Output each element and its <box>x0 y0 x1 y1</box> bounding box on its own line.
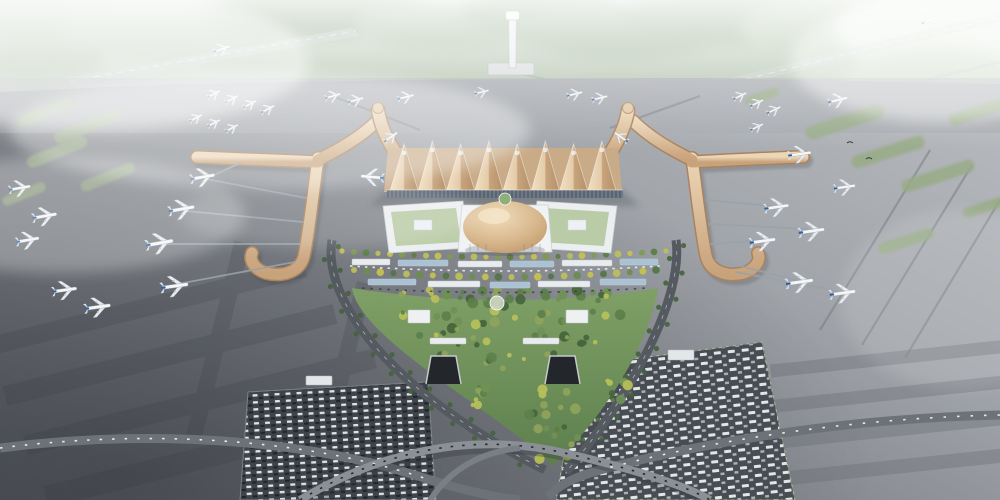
park-tree <box>458 295 463 300</box>
park-tree <box>551 432 557 438</box>
curbside-tree <box>351 267 357 273</box>
curbside-canopy <box>538 281 590 287</box>
park-tree <box>565 335 569 339</box>
park-tree <box>593 340 597 344</box>
roadside-tree <box>408 389 413 394</box>
curbside-tree <box>443 273 450 280</box>
park-tree <box>482 297 487 302</box>
park-tree <box>471 319 481 329</box>
park-tree <box>615 309 626 320</box>
curbside-tree <box>459 254 465 260</box>
curbside-tree <box>615 251 622 258</box>
airport-aerial-rendering <box>0 0 1000 500</box>
park-tree <box>609 390 615 396</box>
park-tree <box>500 365 506 371</box>
curbside-tree <box>430 272 436 278</box>
park-tree <box>398 292 404 298</box>
roadside-tree <box>673 297 678 302</box>
curbside-canopy <box>490 282 530 288</box>
curbside-tree <box>339 248 344 253</box>
tunnel-portal-right <box>545 356 580 384</box>
roadside-tree <box>665 322 670 327</box>
curbside-tree <box>561 273 568 280</box>
curbside-canopy <box>562 260 612 266</box>
roadside-tree <box>642 369 647 374</box>
park-tree <box>574 434 581 441</box>
park-tree <box>577 341 582 346</box>
park-tree <box>583 335 589 341</box>
curbside-tree <box>579 252 586 259</box>
park-tree <box>433 313 440 320</box>
curbside-canopy <box>352 259 390 265</box>
curbside-tree <box>455 273 463 281</box>
park-tree <box>442 289 452 299</box>
roadside-tree <box>427 386 432 391</box>
park-tree <box>515 294 525 304</box>
curbside-tree <box>587 272 593 278</box>
roadside-tree <box>472 436 477 441</box>
park-tree <box>467 297 478 308</box>
park-tree <box>616 395 626 405</box>
curbside-tree <box>651 248 658 255</box>
curbside-tree <box>627 251 632 256</box>
curbside-tree <box>567 253 573 259</box>
roadside-tree <box>654 346 659 351</box>
curbside-tree <box>600 271 607 278</box>
roadside-tree <box>429 406 434 411</box>
curbside-tree <box>652 266 660 274</box>
park-tree <box>473 401 482 410</box>
curbside-tree <box>543 253 550 260</box>
curbside-tree <box>390 270 396 276</box>
roadside-tree <box>614 414 619 419</box>
park-tree <box>451 307 458 314</box>
curbside-tree <box>591 253 596 258</box>
curbside-tree <box>469 274 475 280</box>
curbside-tree <box>555 254 560 259</box>
park-tree <box>540 401 548 409</box>
curbside-tree <box>447 254 452 259</box>
roadside-tree <box>389 352 394 357</box>
roadside-tree <box>328 284 333 289</box>
park-tree <box>595 298 600 303</box>
park-tree <box>490 317 500 327</box>
park-tree <box>442 311 452 321</box>
roadside-tree <box>389 371 394 376</box>
forecourt-garden <box>499 193 511 205</box>
park-tree <box>611 398 615 402</box>
roadside-tree <box>322 257 327 262</box>
roadside-tree <box>663 280 668 285</box>
rendering-canvas <box>0 0 1000 500</box>
park-tree <box>537 310 545 318</box>
curbside-tree <box>509 274 515 280</box>
park-tree <box>623 380 633 390</box>
roof-skylight <box>572 151 576 155</box>
roadside-tree <box>636 351 641 356</box>
park-tree <box>522 357 526 361</box>
roadside-tree <box>517 462 522 467</box>
park-tree <box>480 382 490 392</box>
tunnel-portal-left <box>426 356 461 384</box>
curbside-tree <box>435 253 442 260</box>
park-tree <box>543 425 549 431</box>
roadside-tree <box>338 268 343 273</box>
park-tree <box>416 332 423 339</box>
park-tree <box>537 327 545 335</box>
curbside-tree <box>376 268 384 276</box>
curbside-canopy <box>600 279 646 285</box>
park-tree <box>542 410 551 419</box>
park-tree <box>483 338 491 346</box>
roadside-tree <box>408 370 413 375</box>
roadside-tree <box>490 431 495 436</box>
roadside-tree <box>370 352 375 357</box>
park-tree <box>603 293 609 299</box>
roadside-tree <box>346 291 351 296</box>
curbside-tree <box>548 273 554 279</box>
park-tree <box>454 327 459 332</box>
curbside-tree <box>639 268 646 275</box>
roadside-tree <box>339 309 344 314</box>
curbside-tree <box>423 253 429 259</box>
park-tree <box>533 424 542 433</box>
curbside-tree <box>403 271 410 278</box>
roadside-tree <box>647 328 652 333</box>
park-tree <box>562 424 568 430</box>
park-tree <box>431 295 436 300</box>
curbside-tree <box>375 251 380 256</box>
park-tree <box>474 342 479 347</box>
roadside-tree <box>681 243 686 248</box>
park-tree <box>570 403 581 414</box>
curbside-tree <box>627 269 633 275</box>
roadside-tree <box>629 392 634 397</box>
roadside-tree <box>373 333 378 338</box>
curbside-canopy <box>368 279 416 285</box>
park-tree <box>479 320 486 327</box>
park-tree <box>512 315 518 321</box>
curbside-tree <box>663 248 668 253</box>
park-tree <box>601 312 609 320</box>
curbside-tree <box>471 253 478 260</box>
curbside-canopy <box>620 259 658 265</box>
park-tree <box>558 405 564 411</box>
park-tree <box>434 332 439 337</box>
roadside-tree <box>469 417 474 422</box>
curbside-canopy <box>398 260 448 266</box>
curbside-tree <box>482 273 489 280</box>
curbside-tree <box>639 250 645 256</box>
curbside-tree <box>416 271 424 279</box>
curbside-tree <box>613 269 621 277</box>
roadside-tree <box>447 402 452 407</box>
curbside-tree <box>363 249 370 256</box>
curbside-tree <box>534 273 542 281</box>
curbside-canopy <box>458 261 502 267</box>
curbside-tree <box>411 253 416 258</box>
roadside-tree <box>358 313 363 318</box>
park-tree <box>582 340 587 345</box>
roadside-tree <box>595 417 600 422</box>
park-tree <box>401 310 405 314</box>
park-tree <box>554 427 559 432</box>
park-tree <box>478 286 487 295</box>
curbside-tree <box>364 268 371 275</box>
park-tree <box>470 335 476 341</box>
park-tree <box>590 309 596 315</box>
roadside-tree <box>354 331 359 336</box>
park-tree <box>605 379 609 383</box>
park-tree <box>486 352 496 362</box>
curbside-canopy <box>510 261 554 267</box>
park-tree <box>537 384 547 394</box>
curbside-tree <box>521 273 528 280</box>
roadside-tree <box>450 421 455 426</box>
park-tree <box>524 409 535 420</box>
roof-skylight <box>515 151 519 155</box>
curbside-canopy <box>428 281 480 287</box>
park-tree <box>507 353 512 358</box>
roadside-tree <box>667 256 672 261</box>
roadside-tree <box>599 436 604 441</box>
roadside-tree <box>656 305 661 310</box>
curbside-tree <box>351 249 357 255</box>
park-tree <box>568 441 575 448</box>
curbside-tree <box>495 273 503 281</box>
curbside-tree <box>573 272 581 280</box>
curbside-tree <box>531 254 537 260</box>
park-tree <box>563 388 571 396</box>
roadside-tree <box>679 270 684 275</box>
